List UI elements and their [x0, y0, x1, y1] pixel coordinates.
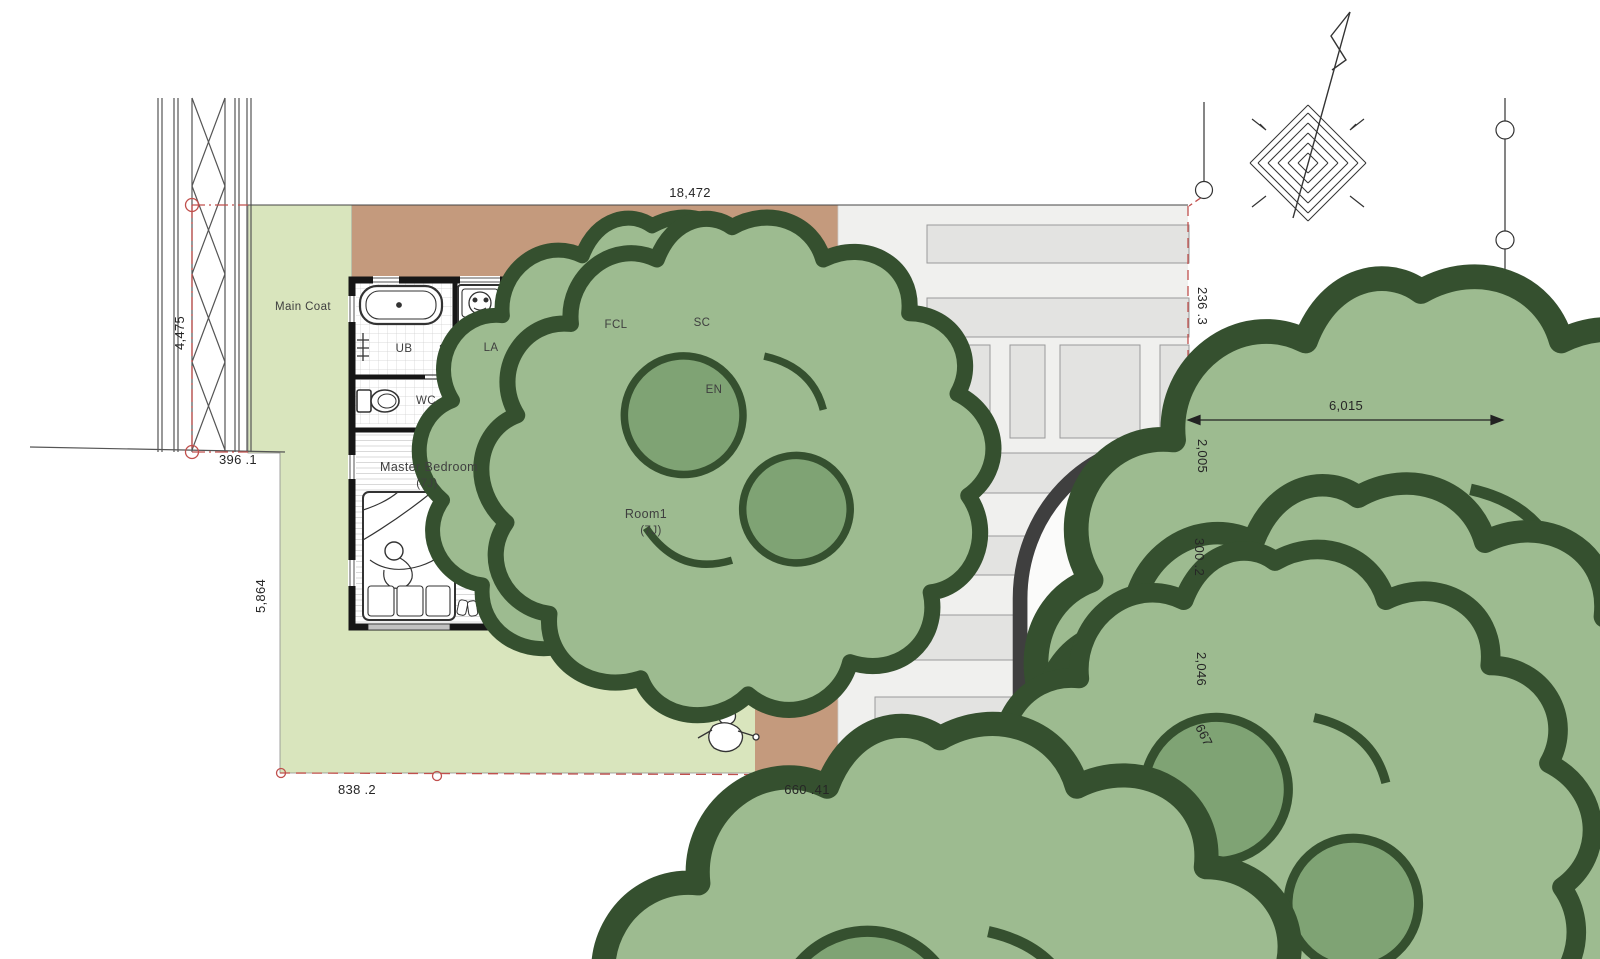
survey-marker-icon [1496, 121, 1514, 139]
label-wc: WC [416, 395, 436, 407]
dim-right-2: 2,005 [1195, 439, 1210, 473]
sleeping-person-head [385, 542, 403, 560]
label-master-bedroom: Master Bedroom [380, 460, 478, 474]
dim-left-side: 5,864 [253, 579, 268, 613]
dim-road-length: 4,475 [172, 316, 187, 350]
dim-right-4: 2,046 [1194, 652, 1209, 686]
dim-bottom-left: 838 .2 [338, 782, 376, 797]
label-la: LA [484, 342, 499, 354]
dim-right-1: 236 .3 [1195, 287, 1210, 325]
survey-marker-icon [1496, 231, 1514, 249]
label-ub: UB [396, 343, 413, 355]
label-en: EN [706, 384, 723, 396]
site-plan-canvas: 18,472 6,015 4,475 396 .1 5,864 838 .2 6… [0, 0, 1600, 959]
road-west [30, 98, 285, 452]
label-room1-size: (7J) [640, 525, 661, 537]
label-sc: SC [694, 317, 711, 329]
dim-left-offset: 396 .1 [219, 452, 257, 467]
site-plan-svg: 18,472 6,015 4,475 396 .1 5,864 838 .2 6… [0, 0, 1600, 959]
dim-east-road: 6,015 [1329, 398, 1363, 413]
label-main-coat: Main Coat [275, 301, 331, 313]
label-room1: Room1 [625, 507, 667, 521]
dim-right-3: 300 .2 [1192, 538, 1207, 576]
north-arrow-icon [1250, 12, 1366, 221]
label-fcl: FCL [605, 319, 628, 331]
dim-bottom-mid: 660 .41 [784, 782, 829, 797]
dim-site-width: 18,472 [669, 185, 711, 200]
toilet-tank [357, 390, 371, 412]
label-master-bedroom-size: (7J) [416, 478, 437, 490]
survey-marker-icon [1196, 182, 1213, 199]
